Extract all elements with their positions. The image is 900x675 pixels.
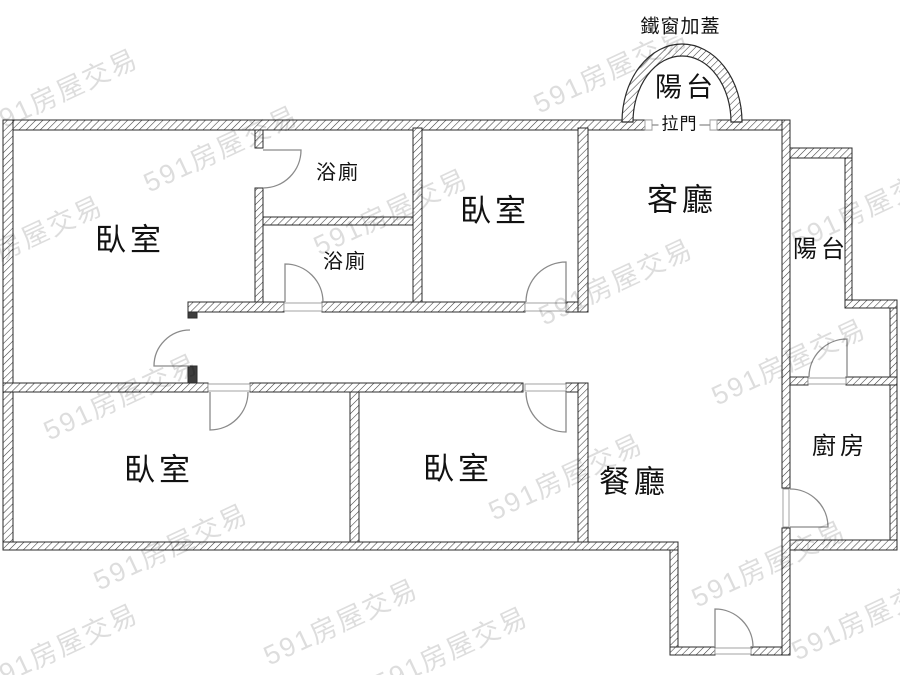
room-label-bedroom-top-left: 臥室 bbox=[91, 225, 165, 256]
room-label-bathroom-upper: 浴廁 bbox=[314, 163, 360, 183]
room-label-balcony-right: 陽台 bbox=[789, 238, 849, 262]
room-label-living-room: 客廳 bbox=[643, 185, 717, 216]
annotation-iron-window-cover: 鐵窗加蓋 bbox=[637, 18, 722, 37]
annotation-sliding-door: 拉門 bbox=[659, 116, 700, 133]
door-bedroom-bottom-left bbox=[210, 392, 248, 430]
walls bbox=[3, 120, 897, 655]
door-main-entrance bbox=[715, 609, 753, 647]
door-corridor-bedroom bbox=[154, 330, 190, 366]
door-bedroom-bottom-middle bbox=[526, 392, 566, 432]
room-label-bedroom-bottom-middle: 臥室 bbox=[419, 454, 493, 485]
door-balcony-kitchen bbox=[809, 339, 847, 377]
door-bathroom-upper bbox=[263, 150, 301, 188]
room-label-bedroom-bottom-left: 臥室 bbox=[120, 455, 194, 486]
floor-plan-drawing bbox=[0, 0, 900, 675]
room-label-dining-room: 餐廳 bbox=[595, 467, 669, 498]
door-bedroom-top-middle bbox=[526, 262, 566, 302]
door-kitchen bbox=[790, 489, 828, 527]
wall-stubs bbox=[188, 312, 197, 383]
room-label-bathroom-lower: 浴廁 bbox=[321, 252, 367, 272]
room-label-kitchen: 廚房 bbox=[808, 435, 868, 459]
door-bathroom-lower bbox=[285, 264, 323, 302]
room-label-bedroom-top-middle: 臥室 bbox=[456, 196, 530, 227]
room-label-balcony-top: 陽台 bbox=[651, 75, 717, 102]
floor-plan: 591房屋交易591房屋交易591房屋交易591房屋交易591房屋交易591房屋… bbox=[0, 0, 900, 675]
